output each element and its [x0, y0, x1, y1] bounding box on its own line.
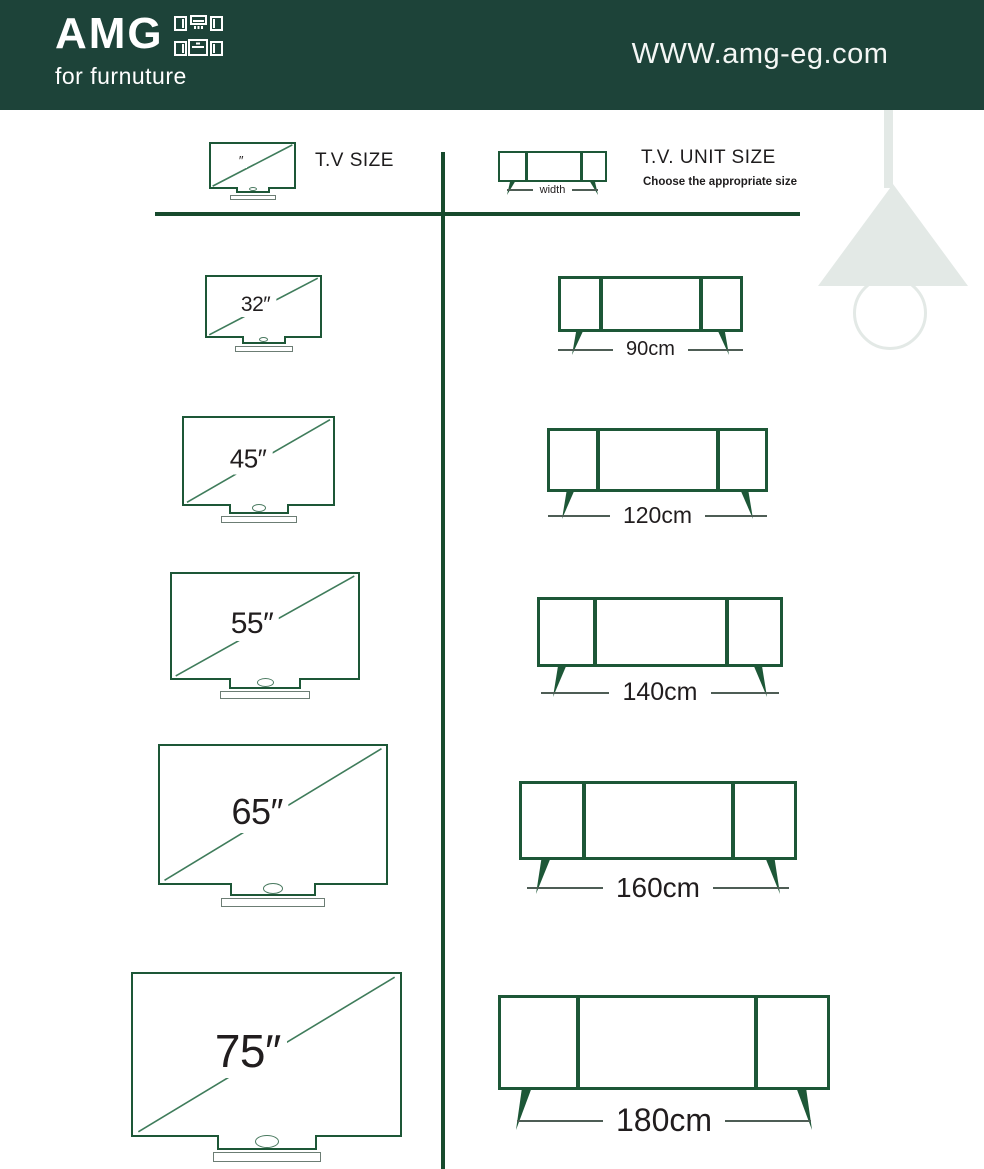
caption-dash	[688, 349, 743, 351]
legend-tv-icon: ″	[209, 142, 296, 189]
tv-55: 55″	[170, 572, 360, 680]
caption-dash	[713, 887, 789, 889]
tv-stand	[230, 187, 276, 200]
tv-stand-base	[235, 346, 293, 352]
unit-size-title: T.V. UNIT SIZE	[641, 147, 776, 169]
tv-32: 32″	[205, 275, 322, 338]
unit-divider	[576, 998, 580, 1087]
tv-stand-base	[221, 516, 297, 523]
tv-unit-160	[519, 781, 797, 860]
kitchen-furniture-icon	[174, 15, 224, 59]
tv-stand-neck	[230, 883, 316, 896]
tv-stand-knob	[252, 504, 266, 512]
unit-divider	[731, 784, 735, 857]
tv-75: 75″	[131, 972, 402, 1137]
unit-divider	[725, 600, 729, 664]
tv-size-title: T.V SIZE	[315, 150, 394, 172]
tv-size-label: 55″	[225, 607, 280, 641]
tv-stand-neck	[229, 678, 301, 689]
column-divider-rule	[441, 152, 445, 1169]
tv-stand	[221, 504, 297, 523]
legend-unit-icon	[498, 151, 607, 182]
unit-divider	[580, 153, 583, 180]
caption-dash	[725, 1120, 811, 1122]
header-banner: AMG for furnuture WWW.amg-eg.com	[0, 0, 984, 110]
tv-stand-knob	[257, 678, 274, 687]
tv-stand-knob	[255, 1135, 279, 1148]
caption-dash	[558, 349, 613, 351]
caption-dash	[711, 692, 779, 694]
tv-stand	[221, 883, 325, 907]
tv-size-label: 65″	[226, 791, 289, 833]
tv-stand	[235, 336, 293, 352]
tv-45: 45″	[182, 416, 335, 506]
unit-divider	[582, 784, 586, 857]
unit-width-caption: 120cm	[537, 502, 778, 529]
lamp-shade-icon	[818, 184, 968, 286]
lamp-bulb-icon	[853, 276, 927, 350]
unit-divider	[716, 431, 720, 489]
tv-size-label: 75″	[209, 1024, 287, 1078]
tv-stand-neck	[217, 1135, 317, 1150]
width-label: width	[540, 184, 566, 196]
unit-divider	[754, 998, 758, 1087]
unit-divider	[593, 600, 597, 664]
tv-stand	[213, 1135, 321, 1162]
unit-divider	[525, 153, 528, 180]
caption-dash	[705, 515, 767, 517]
tv-unit-90	[558, 276, 743, 332]
logo: AMG for furnuture	[55, 12, 224, 90]
tv-stand-base	[221, 898, 325, 907]
unit-divider	[596, 431, 600, 489]
unit-width-label: 160cm	[616, 872, 700, 904]
logo-text: AMG	[55, 12, 164, 56]
tv-stand-knob	[263, 883, 283, 894]
unit-size-subtitle: Choose the appropriate size	[643, 176, 797, 188]
tv-diagonal-line	[211, 144, 294, 187]
tv-unit-180	[498, 995, 830, 1090]
tv-stand-base	[230, 195, 276, 200]
tv-stand-knob	[259, 337, 268, 342]
width-caption: width	[492, 184, 613, 196]
tv-stand-neck	[236, 187, 270, 193]
website-url: WWW.amg-eg.com	[620, 38, 900, 71]
unit-width-label: 140cm	[622, 678, 697, 707]
caption-dash	[507, 189, 533, 191]
logo-tagline: for furnuture	[55, 63, 224, 90]
tv-stand-neck	[229, 504, 289, 514]
horizontal-rule	[155, 212, 800, 216]
poster: AMG for furnuture WWW.amg-eg.com ″	[0, 0, 984, 1169]
tv-stand	[220, 678, 310, 699]
caption-dash	[541, 692, 609, 694]
caption-dash	[548, 515, 610, 517]
unit-divider	[599, 279, 603, 329]
unit-width-caption: 140cm	[527, 678, 793, 707]
tv-unit-120	[547, 428, 768, 492]
logo-row: AMG	[55, 12, 224, 59]
caption-dash	[517, 1120, 603, 1122]
caption-dash	[572, 189, 598, 191]
tv-stand-base	[220, 691, 310, 699]
unit-width-caption: 160cm	[509, 872, 807, 904]
tv-stand-knob	[249, 187, 257, 191]
unit-width-caption: 90cm	[548, 338, 753, 361]
tv-unit-140	[537, 597, 783, 667]
tv-size-label: 32″	[235, 293, 276, 317]
caption-dash	[527, 887, 603, 889]
tv-stand-neck	[242, 336, 286, 344]
lamp-cord	[884, 110, 893, 188]
unit-divider	[699, 279, 703, 329]
tv-stand-base	[213, 1152, 321, 1162]
unit-width-caption: 180cm	[488, 1102, 840, 1139]
unit-width-label: 120cm	[623, 502, 692, 529]
unit-width-label: 90cm	[626, 338, 675, 361]
inch-mark: ″	[236, 153, 247, 168]
tv-size-label: 45″	[224, 444, 273, 475]
unit-width-label: 180cm	[616, 1102, 712, 1139]
tv-65: 65″	[158, 744, 388, 885]
